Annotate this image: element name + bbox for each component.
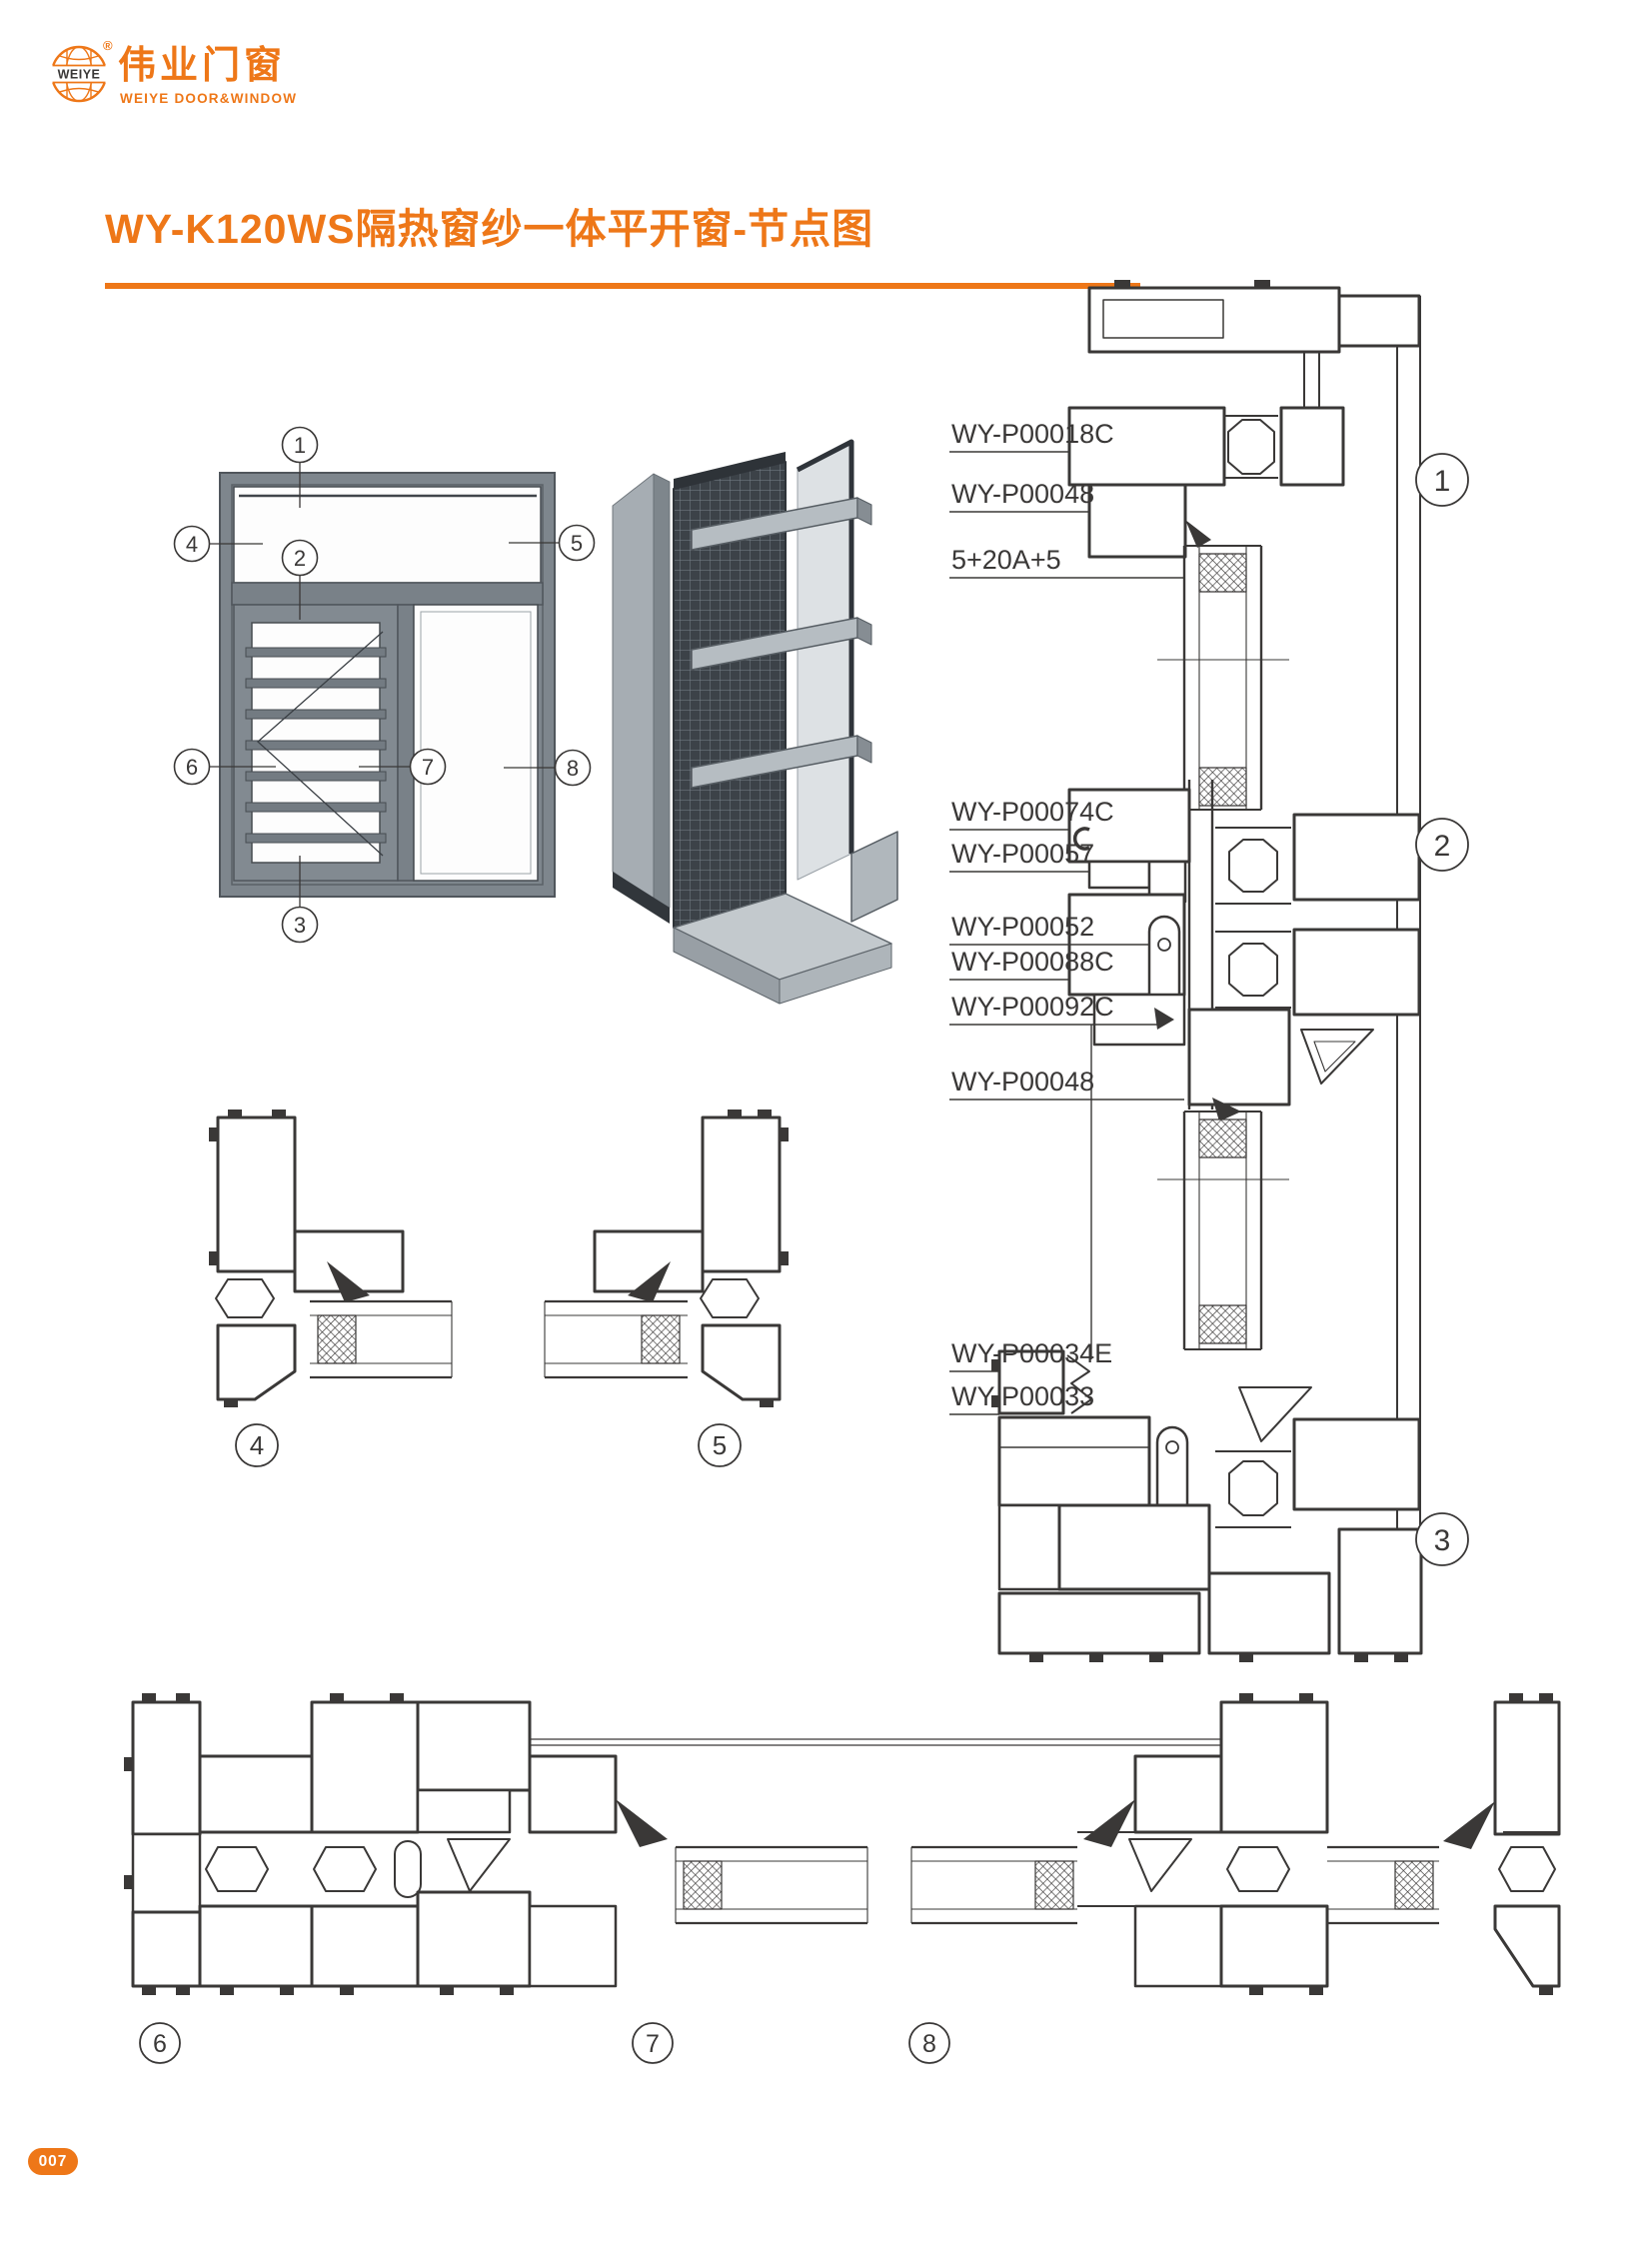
callout-4: 4 xyxy=(186,532,198,557)
detail-section-5-drawing xyxy=(545,1110,789,1407)
section-callout-7: 7 xyxy=(646,2030,660,2058)
horizontal-section-callout-numbers: 6 7 8 xyxy=(153,2030,936,2058)
section-callout-6: 6 xyxy=(153,2030,167,2058)
part-labels: WY-P00018C WY-P00048 5+20A+5 WY-P00074C … xyxy=(951,419,1114,1411)
callout-3: 3 xyxy=(294,913,306,938)
detail-callouts xyxy=(236,1424,741,1466)
part-label: WY-P00092C xyxy=(951,992,1114,1022)
section-callout-1: 1 xyxy=(1434,465,1451,498)
part-label: WY-P00088C xyxy=(951,947,1114,977)
callout-8: 8 xyxy=(567,756,579,781)
vertical-section-callouts xyxy=(1416,454,1468,1565)
part-label: 5+20A+5 xyxy=(951,545,1061,575)
callout-7: 7 xyxy=(422,755,434,780)
callout-2: 2 xyxy=(294,546,306,571)
part-label: WY-P00034E xyxy=(951,1338,1112,1368)
corner-3d-render xyxy=(613,442,897,1004)
callout-1: 1 xyxy=(294,433,306,458)
part-label: WY-P00018C xyxy=(951,419,1114,449)
detail-callout-4: 4 xyxy=(250,1430,264,1460)
detail-callout-5: 5 xyxy=(713,1430,727,1460)
horizontal-section-callouts xyxy=(140,2023,949,2063)
detail-section-4-drawing xyxy=(209,1110,452,1407)
part-label: WY-P00048 xyxy=(951,1067,1094,1097)
page-number-badge: 007 xyxy=(28,2148,78,2175)
part-label: WY-P00057 xyxy=(951,839,1094,869)
callout-6: 6 xyxy=(186,755,198,780)
section-callout-3: 3 xyxy=(1434,1524,1451,1557)
detail-callout-numbers: 4 5 xyxy=(250,1430,727,1460)
part-label: WY-P00033 xyxy=(951,1381,1094,1411)
section-callout-8: 8 xyxy=(922,2030,936,2058)
horizontal-section-drawing xyxy=(124,1693,1559,1995)
node-diagrams-canvas: 1 2 3 4 5 6 7 8 xyxy=(0,0,1652,2241)
vertical-section-callout-numbers: 1 2 3 xyxy=(1434,465,1451,1557)
part-label: WY-P00074C xyxy=(951,797,1114,827)
section-callout-2: 2 xyxy=(1434,830,1451,863)
callout-5: 5 xyxy=(571,531,583,556)
catalog-page: WEIYE ® 伟业门窗 WEIYE DOOR&WINDOW WY-K120WS… xyxy=(0,0,1652,2241)
window-elevation-drawing xyxy=(220,473,555,897)
part-label: WY-P00052 xyxy=(951,912,1094,942)
part-label: WY-P00048 xyxy=(951,479,1094,509)
